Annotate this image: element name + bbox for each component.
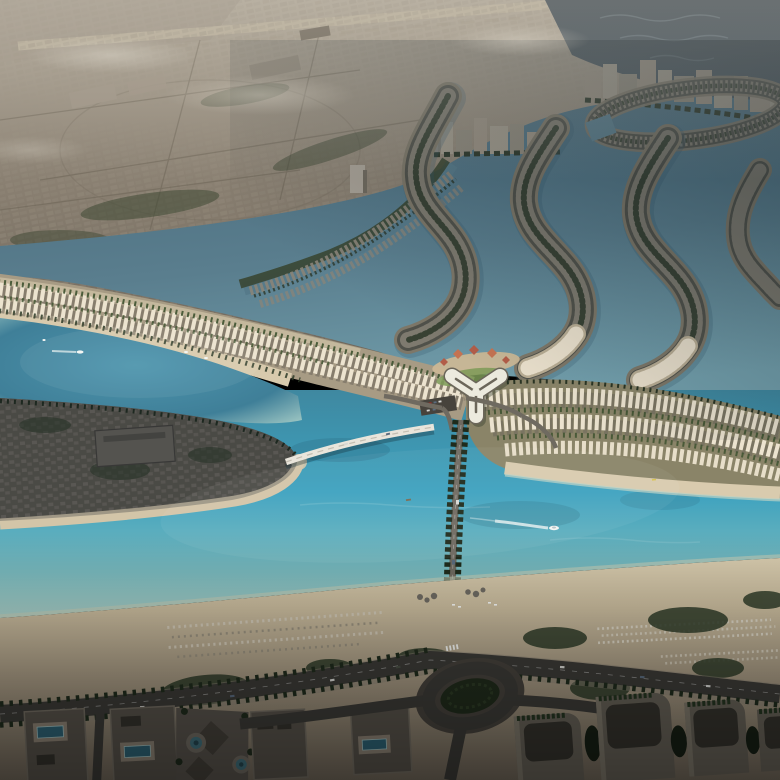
aerial-render-waterfront-masterplan (0, 0, 780, 780)
moored-boat (184, 351, 188, 353)
lagoon-glint (20, 326, 260, 398)
moored-boat (204, 357, 208, 359)
jetski (42, 339, 45, 341)
scene-canvas (0, 0, 780, 780)
boat-wake (52, 351, 76, 352)
dusk-overlay-bottom (0, 530, 780, 780)
haze-overlay-top (0, 0, 780, 180)
boat (77, 350, 84, 353)
